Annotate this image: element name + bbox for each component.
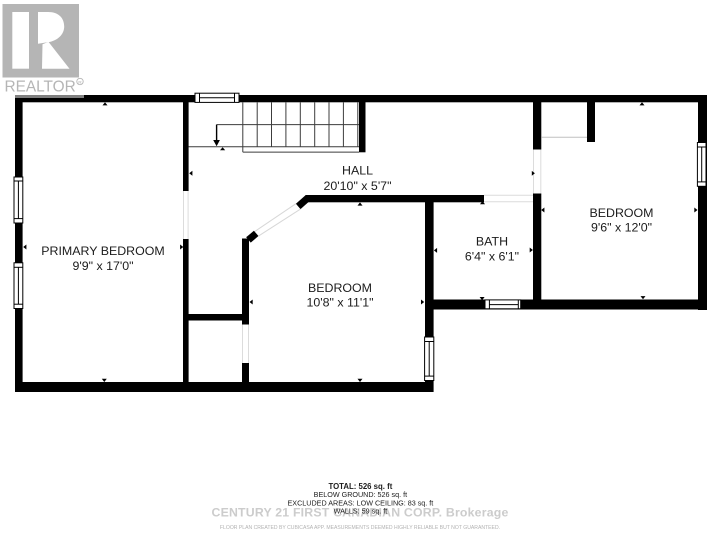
svg-text:BATH: BATH	[476, 234, 508, 248]
svg-text:BEDROOM: BEDROOM	[589, 206, 653, 220]
svg-text:6'4" x 6'1": 6'4" x 6'1"	[465, 249, 519, 263]
svg-text:FLOOR PLAN CREATED BY CUBICASA: FLOOR PLAN CREATED BY CUBICASA APP. MEAS…	[220, 525, 500, 531]
svg-text:HALL: HALL	[342, 163, 373, 177]
svg-text:9'9" x 17'0": 9'9" x 17'0"	[72, 259, 133, 273]
svg-text:PRIMARY BEDROOM: PRIMARY BEDROOM	[41, 244, 164, 258]
svg-text:BEDROOM: BEDROOM	[308, 281, 372, 295]
svg-text:REALTOR: REALTOR	[5, 78, 76, 95]
svg-text:R: R	[78, 80, 82, 86]
svg-text:10'8" x 11'1": 10'8" x 11'1"	[306, 296, 373, 310]
svg-text:20'10" x 5'7": 20'10" x 5'7"	[324, 179, 392, 193]
svg-text:9'6" x 12'0": 9'6" x 12'0"	[591, 221, 652, 235]
svg-text:WALLS: 59 sq. ft: WALLS: 59 sq. ft	[334, 507, 388, 516]
